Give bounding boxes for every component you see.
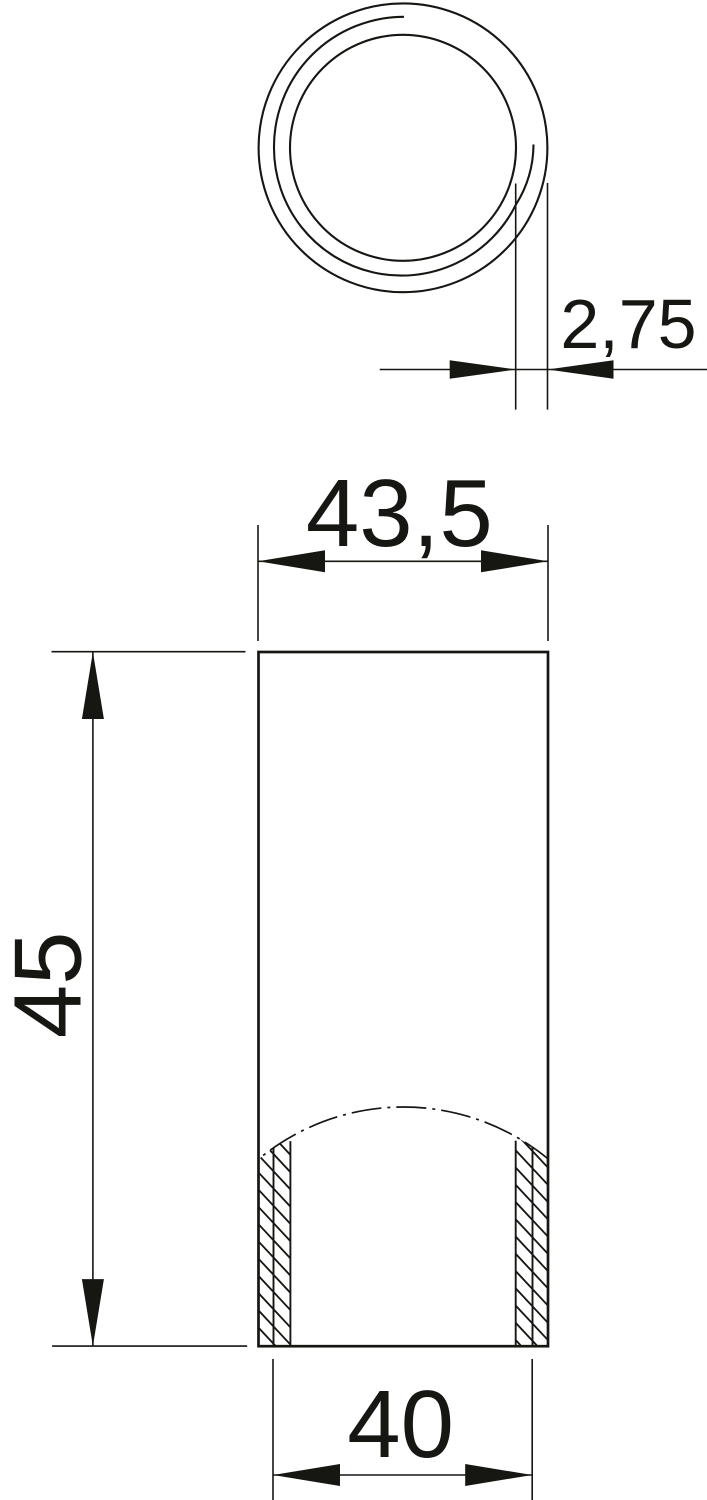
svg-text:45: 45 [0,932,101,1039]
svg-text:2,75: 2,75 [560,285,696,363]
svg-text:43,5: 43,5 [306,460,493,567]
svg-text:40: 40 [347,1371,454,1478]
